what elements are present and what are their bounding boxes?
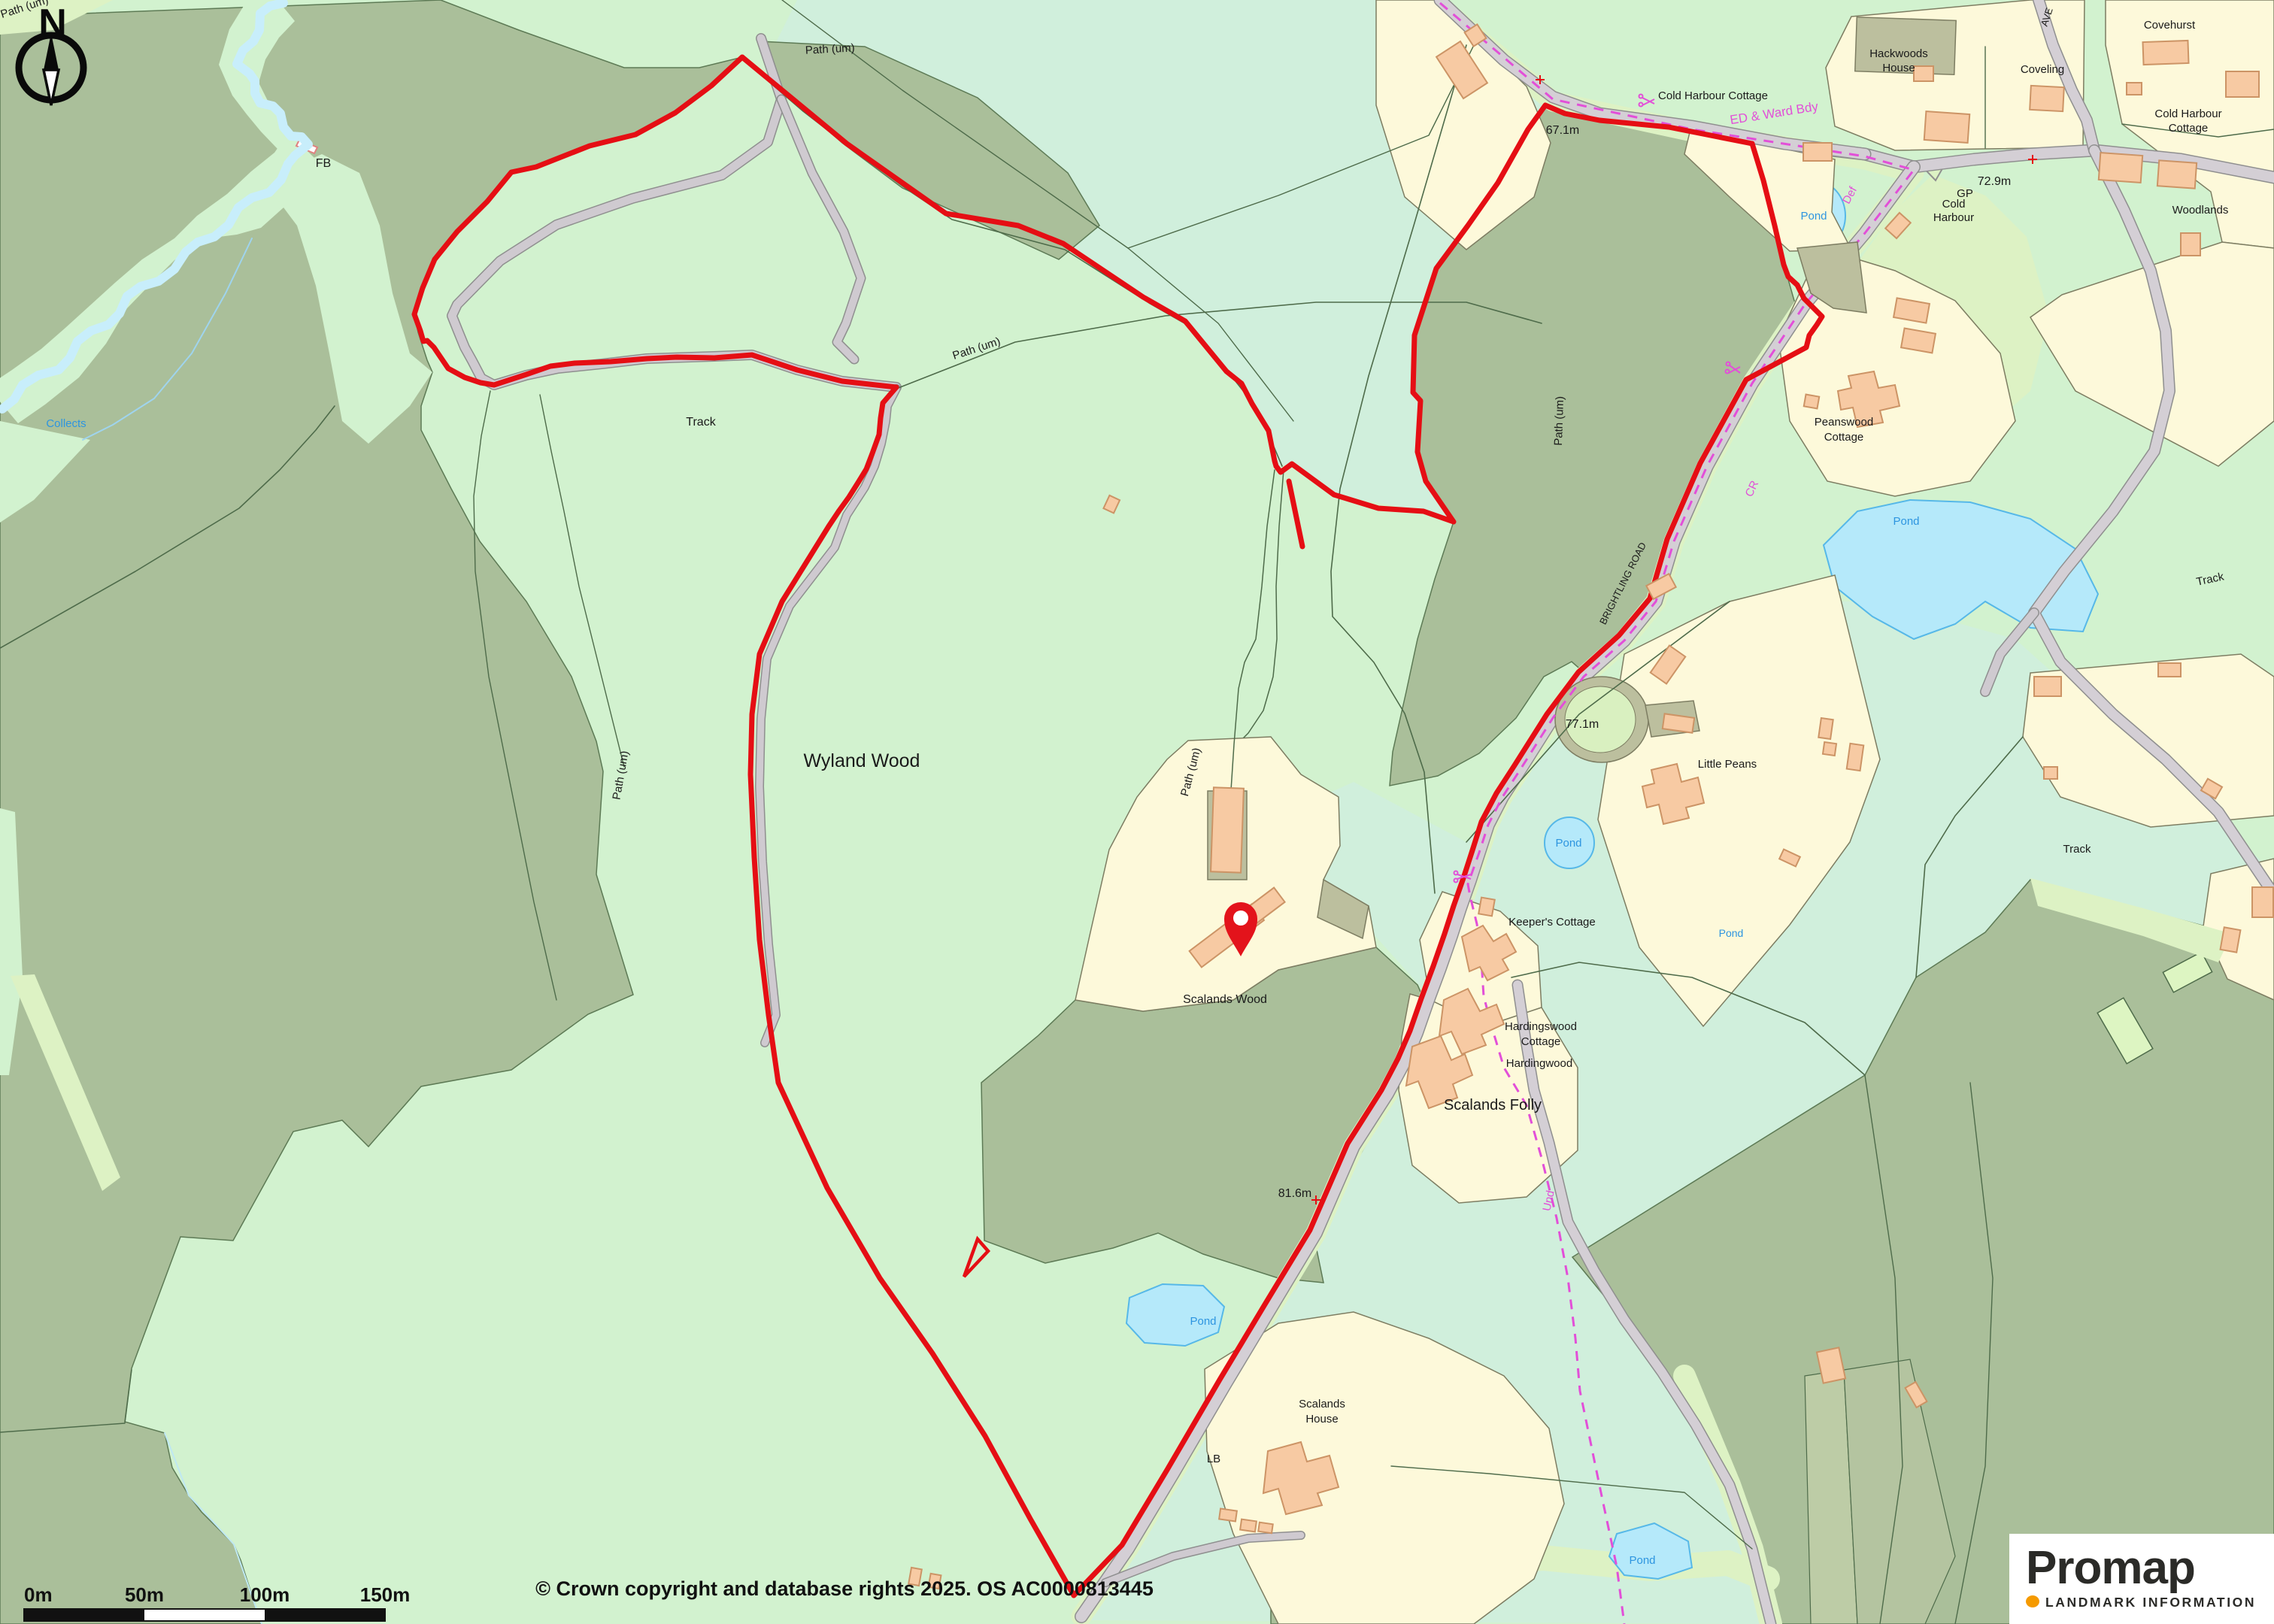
svg-text:Cottage: Cottage — [2169, 122, 2209, 135]
svg-text:LB: LB — [1207, 1453, 1220, 1465]
svg-text:Pond: Pond — [1190, 1315, 1216, 1328]
svg-text:Peanswood: Peanswood — [1815, 416, 1873, 429]
svg-text:N: N — [38, 2, 67, 45]
svg-text:Cold Harbour Cottage: Cold Harbour Cottage — [1658, 89, 1768, 102]
svg-text:Path (um): Path (um) — [805, 41, 855, 56]
svg-text:Pond: Pond — [1719, 927, 1744, 939]
svg-text:Track: Track — [686, 416, 716, 429]
svg-text:Cold: Cold — [1942, 198, 1966, 211]
svg-text:Promap: Promap — [2026, 1542, 2195, 1594]
svg-text:Covehurst: Covehurst — [2144, 19, 2196, 32]
svg-text:Cottage: Cottage — [1824, 431, 1864, 444]
svg-text:Cold Harbour: Cold Harbour — [2154, 108, 2221, 120]
svg-text:Coveling: Coveling — [2021, 63, 2064, 76]
svg-text:67.1m: 67.1m — [1546, 124, 1579, 137]
svg-text:Scalands Wood: Scalands Wood — [1183, 993, 1267, 1006]
svg-text:Track: Track — [2063, 843, 2091, 856]
svg-text:Harbour: Harbour — [1933, 211, 1974, 224]
svg-text:Woodlands: Woodlands — [2172, 204, 2229, 217]
svg-text:50m: 50m — [125, 1583, 164, 1606]
svg-text:Pond: Pond — [1893, 515, 1919, 528]
svg-text:0m: 0m — [24, 1583, 53, 1606]
svg-text:LANDMARK INFORMATION: LANDMARK INFORMATION — [2045, 1595, 2256, 1610]
svg-text:Pond: Pond — [1800, 210, 1827, 223]
svg-text:150m: 150m — [360, 1583, 411, 1606]
svg-text:100m: 100m — [240, 1583, 290, 1606]
svg-text:77.1m: 77.1m — [1566, 718, 1599, 731]
svg-text:Wyland Wood: Wyland Wood — [804, 750, 920, 771]
svg-text:Collects: Collects — [46, 417, 86, 430]
svg-text:81.6m: 81.6m — [1278, 1187, 1311, 1200]
svg-text:Hardingwood: Hardingwood — [1506, 1057, 1572, 1070]
svg-text:Keeper's Cottage: Keeper's Cottage — [1508, 916, 1595, 929]
svg-text:72.9m: 72.9m — [1978, 175, 2011, 188]
svg-text:Path (um): Path (um) — [1552, 396, 1566, 446]
svg-text:Hackwoods: Hackwoods — [1869, 47, 1928, 60]
svg-text:FB: FB — [316, 157, 331, 170]
svg-text:Cottage: Cottage — [1521, 1035, 1561, 1048]
svg-text:House: House — [1882, 62, 1915, 74]
svg-text:Scalands: Scalands — [1299, 1398, 1345, 1410]
svg-text:© Crown copyright and database: © Crown copyright and database rights 20… — [535, 1577, 1154, 1600]
svg-text:Pond: Pond — [1555, 837, 1581, 850]
svg-text:House: House — [1305, 1413, 1338, 1426]
svg-text:Little Peans: Little Peans — [1698, 758, 1757, 771]
svg-text:Hardingswood: Hardingswood — [1505, 1020, 1577, 1033]
svg-text:Scalands Folly: Scalands Folly — [1444, 1097, 1542, 1113]
svg-text:Pond: Pond — [1629, 1554, 1655, 1567]
